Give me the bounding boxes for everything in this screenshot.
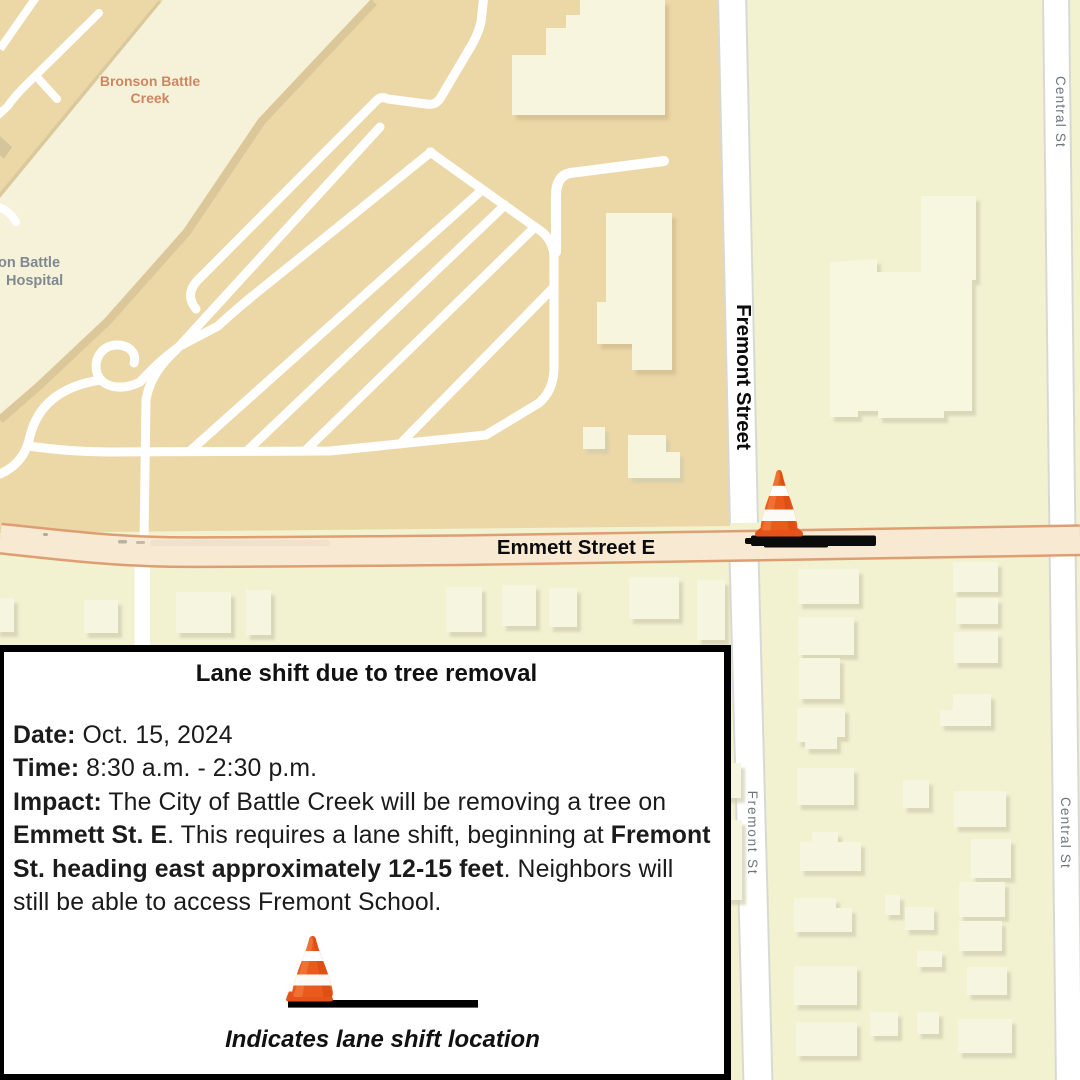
svg-text:Bronson Battle: Bronson Battle (100, 73, 201, 89)
svg-text:Central St: Central St (1058, 797, 1073, 869)
svg-text:Fremont Street: Fremont Street (732, 304, 755, 450)
svg-text:Hospital: Hospital (6, 273, 63, 289)
svg-text:Emmett Street E: Emmett Street E (497, 536, 655, 559)
svg-text:Central St: Central St (1053, 76, 1068, 148)
svg-text:Creek: Creek (131, 90, 170, 106)
svg-text:on Battle: on Battle (0, 255, 60, 271)
